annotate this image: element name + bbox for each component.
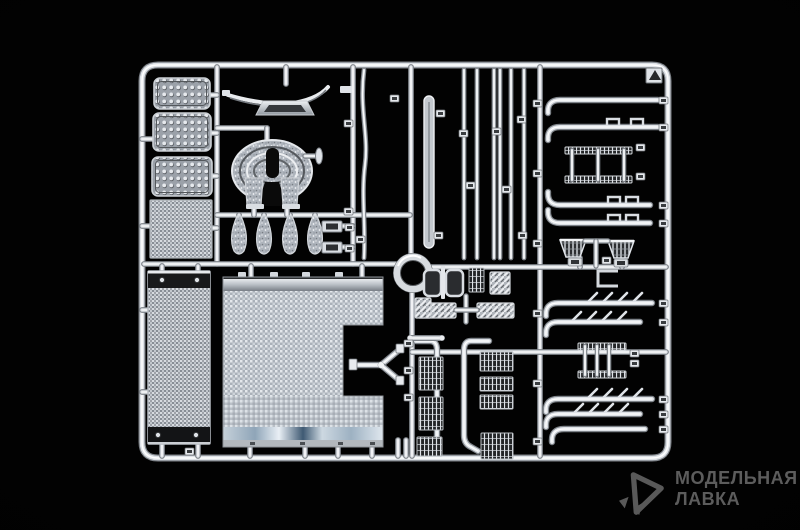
watermark-line1: МОДЕЛЬНАЯ bbox=[675, 468, 798, 489]
photo-vignette bbox=[0, 0, 800, 530]
product-photo: МОДЕЛЬНАЯ ЛАВКА bbox=[0, 0, 800, 530]
paper-dart-logo-icon bbox=[619, 470, 665, 518]
sprue-photo bbox=[0, 0, 800, 530]
watermark-line2: ЛАВКА bbox=[675, 489, 798, 510]
watermark: МОДЕЛЬНАЯ ЛАВКА bbox=[619, 468, 798, 518]
